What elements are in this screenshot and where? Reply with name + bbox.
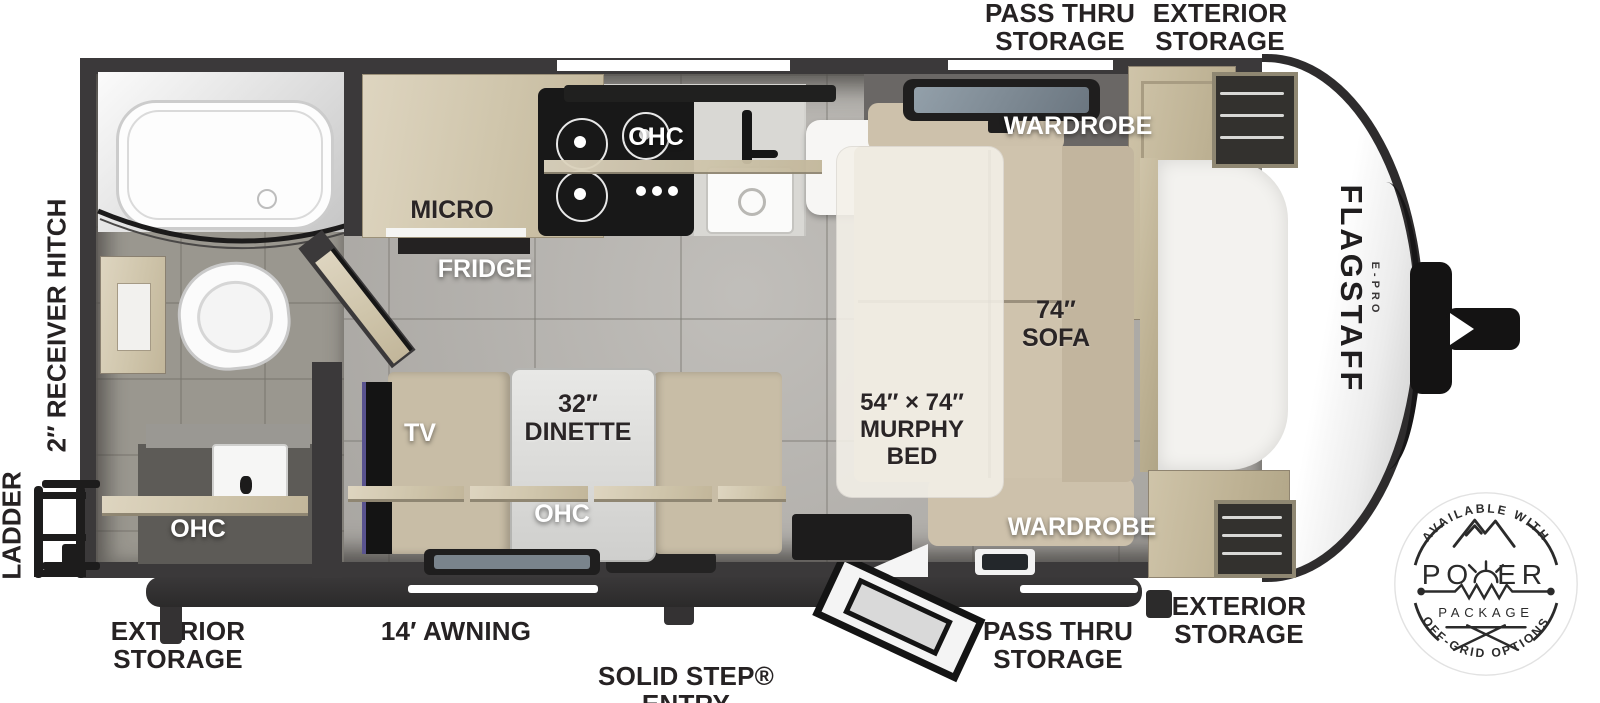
wall-bath-kitchen (344, 74, 362, 236)
brand-logo: E-PRO FLAGSTAFF (1323, 139, 1381, 439)
solid-step-icon (796, 562, 1046, 702)
label-fridge: FRIDGE (405, 256, 565, 284)
knob-dot-3 (668, 186, 678, 196)
label-sofa: 74″ SOFA (996, 296, 1116, 352)
brand-name: FLAGSTAFF (1333, 139, 1369, 439)
vanity-counter (102, 496, 308, 516)
micro-handle (386, 228, 526, 237)
coupler-arrow (1450, 313, 1474, 345)
knob-dot-2 (652, 186, 662, 196)
badge-power-right: ER (1497, 558, 1547, 590)
kitchen-sink (706, 166, 794, 234)
dinette-bench-left (388, 372, 510, 554)
dinette-ohc-shelf-3 (594, 486, 712, 502)
ladder-hook-bottom (42, 562, 100, 570)
label-top-exterior-storage: EXTERIOR STORAGE (1120, 0, 1320, 55)
badge-package-text: PACKAGE (1438, 605, 1534, 620)
label-solid-step-entry: SOLID STEP® ENTRY (556, 663, 816, 703)
window-dinette (424, 549, 600, 575)
ladder-rung-1 (34, 492, 86, 499)
label-micro: MICRO (392, 196, 512, 224)
tv (362, 382, 392, 554)
badge-power-left: PO (1422, 558, 1474, 590)
wardrobe-shelves-top (1212, 72, 1298, 168)
knob-dot-1 (636, 186, 646, 196)
sink-drain (738, 188, 766, 216)
label-tv: TV (390, 420, 450, 448)
ladder-rung-3 (34, 570, 86, 577)
front-bed (1158, 160, 1288, 470)
kitchen-faucet-spout (742, 150, 778, 158)
power-package-badge: AVAILABLE WITH OFF-GRID OPTIONS PO ER PA… (1392, 490, 1580, 678)
wall-bath-dinette (312, 362, 342, 578)
label-ladder: LADDER (0, 456, 28, 596)
brand-sub: E-PRO (1369, 139, 1381, 439)
label-awning: 14′ AWNING (366, 618, 546, 646)
burner-3 (556, 170, 608, 222)
awning-strip-left (408, 585, 598, 593)
label-receiver-hitch: 2″ RECEIVER HITCH (42, 191, 73, 461)
top-rail-strip-left (557, 60, 790, 71)
bumper-end-cap (1146, 590, 1172, 618)
label-dinette-ohc: OHC (512, 501, 612, 529)
bath-cabinet (100, 256, 166, 374)
ladder-hook-top (42, 480, 100, 488)
label-bath-ohc: OHC (148, 516, 248, 544)
counter-ledge (544, 160, 822, 174)
label-wardrobe-top: WARDROBE (978, 113, 1178, 141)
dinette-ohc-shelf-1 (348, 486, 464, 502)
kitchen-ohc-shelf (564, 85, 836, 102)
floorplan-canvas: PASS THRU STORAGE EXTERIOR STORAGE 2″ RE… (0, 0, 1600, 703)
fridge-front (398, 238, 530, 254)
label-dinette: 32″ DINETTE (508, 390, 648, 446)
bath-faucet (240, 476, 252, 494)
toilet-seat (194, 277, 277, 357)
label-wardrobe-bottom: WARDROBE (982, 514, 1182, 542)
ladder-rung-2 (34, 534, 86, 541)
label-kitchen-ohc: OHC (606, 124, 706, 152)
dinette-bench-right (654, 372, 782, 554)
label-murphy-bed: 54″ × 74″ MURPHY BED (842, 390, 982, 471)
bath-mirror (117, 283, 151, 351)
dinette-ohc-shelf-4 (718, 486, 786, 502)
wardrobe-shelves-bottom (1214, 500, 1296, 578)
top-rail-strip-right (948, 60, 1113, 70)
front-bed-rail (1140, 158, 1158, 472)
